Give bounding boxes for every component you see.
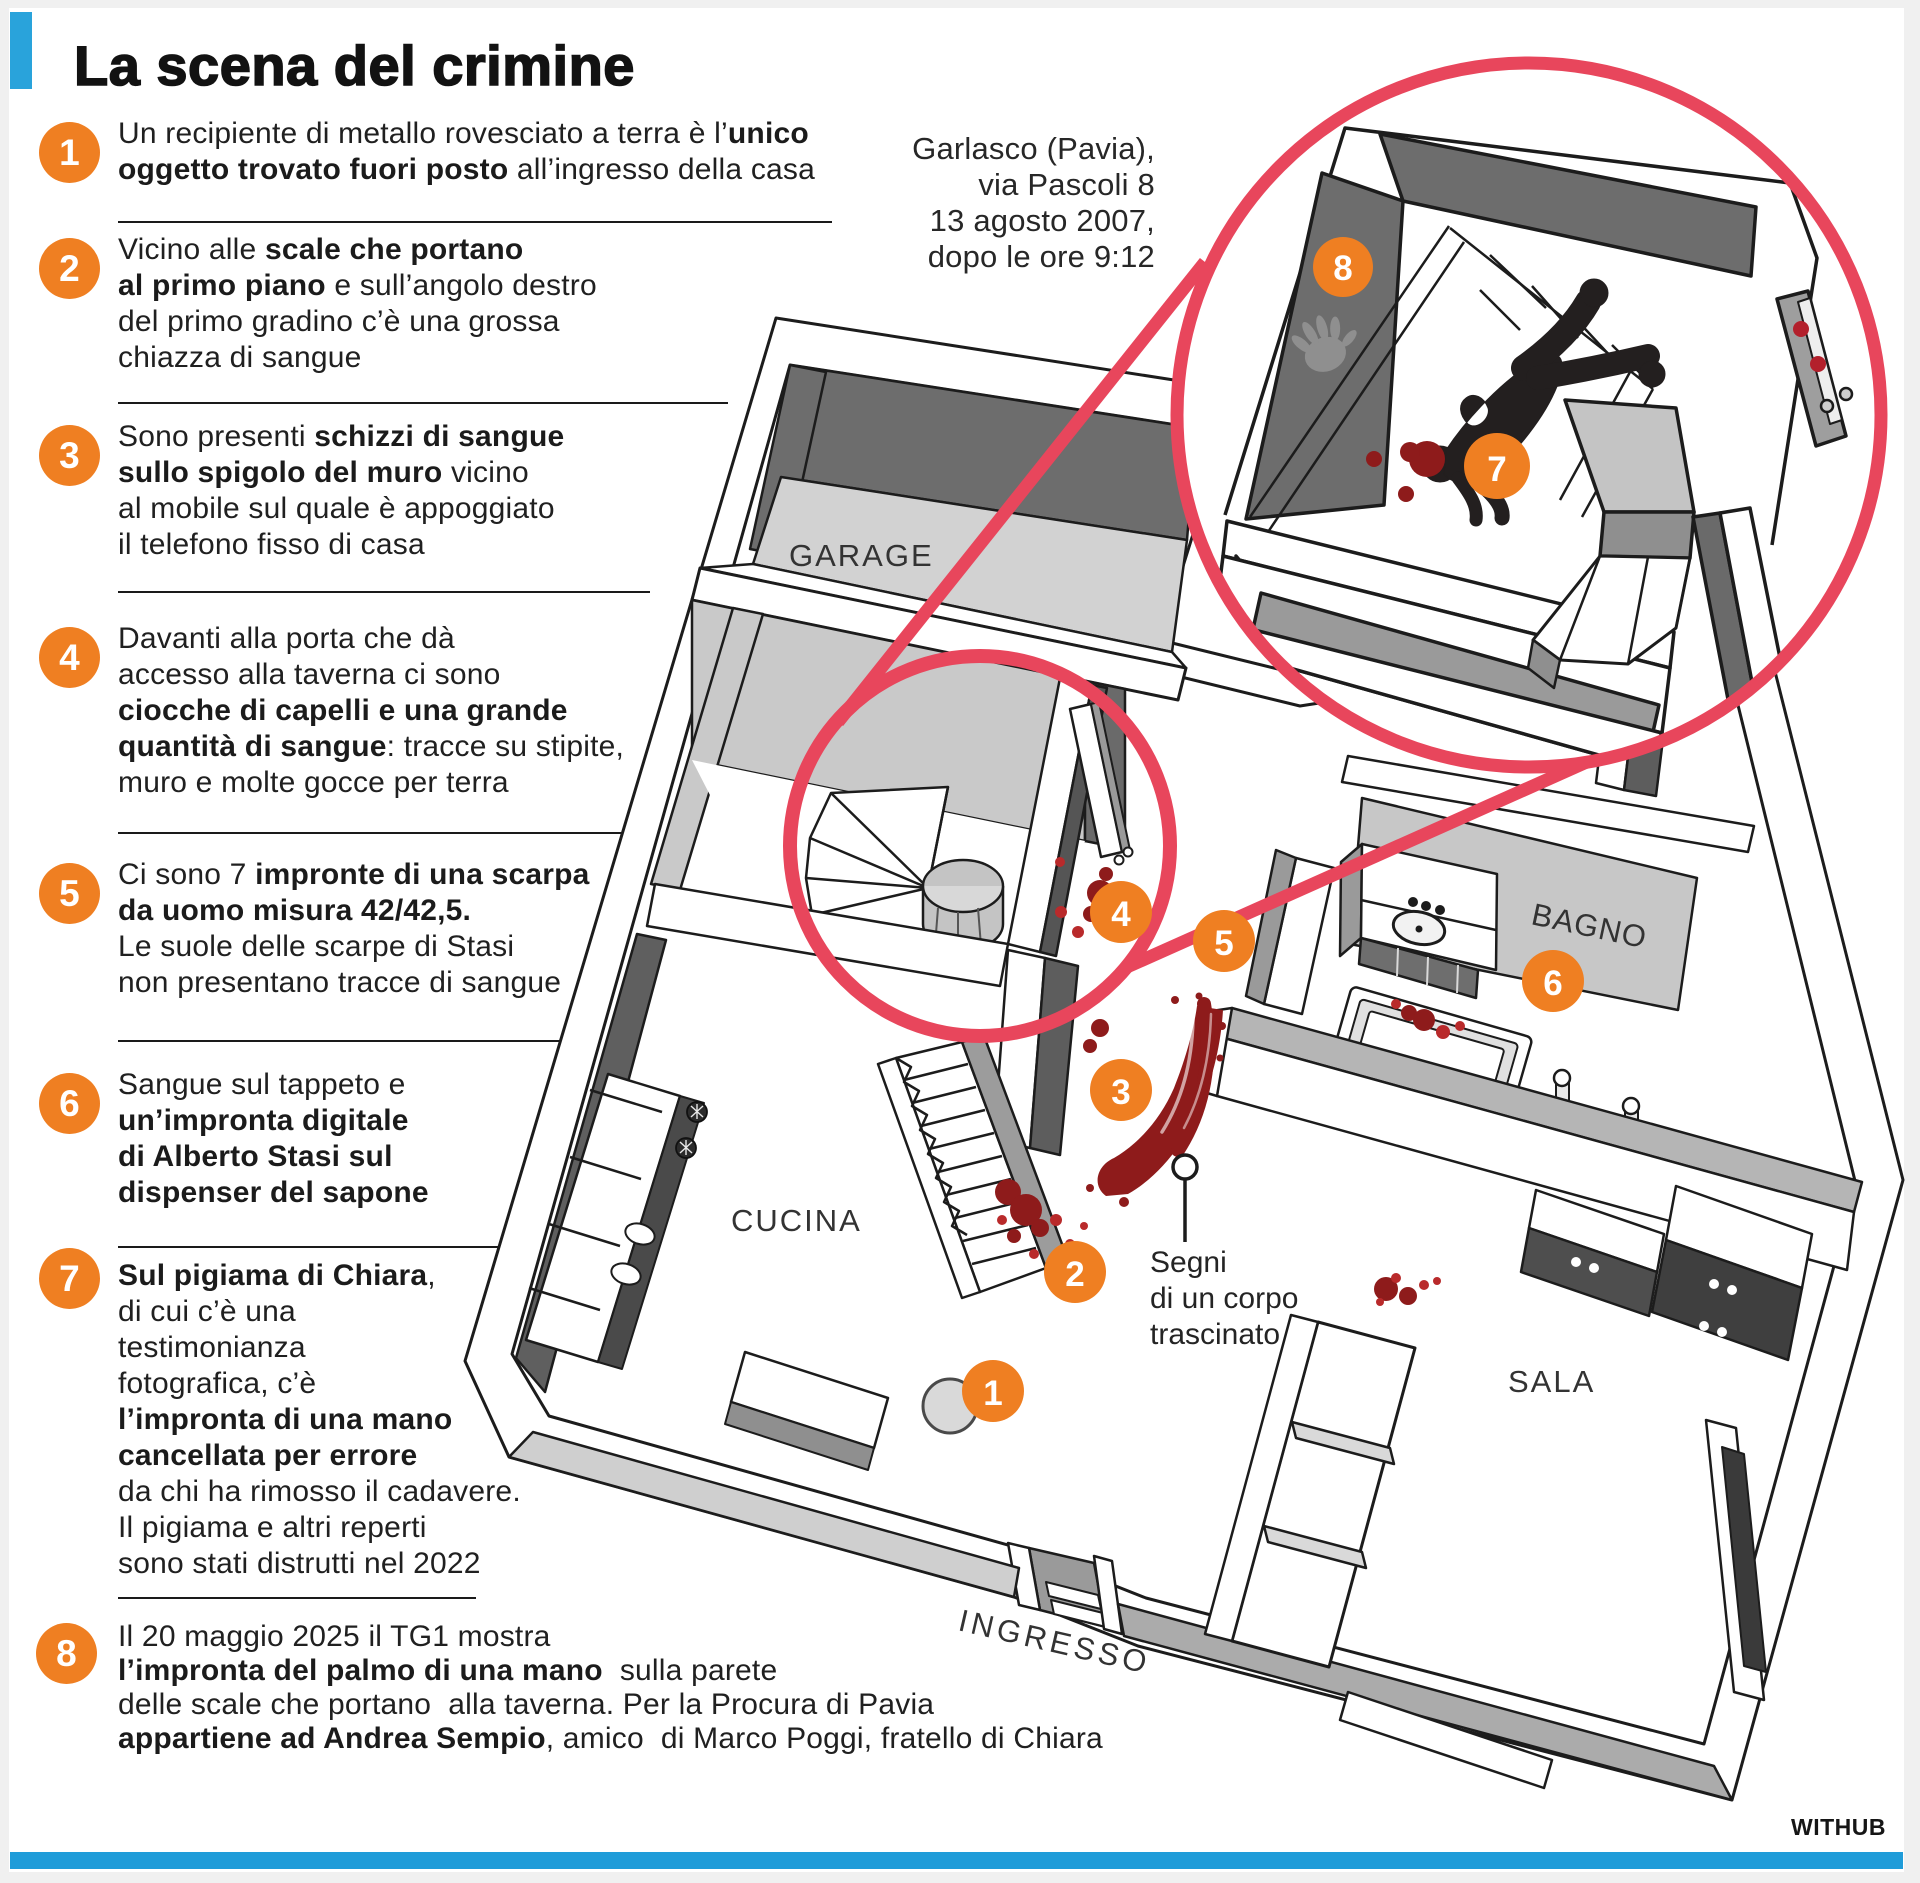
svg-text:GARAGE: GARAGE [789, 538, 934, 573]
svg-text:1: 1 [983, 1374, 1002, 1413]
svg-text:4: 4 [1111, 895, 1131, 934]
svg-text:di un corpo: di un corpo [1150, 1282, 1298, 1315]
svg-text:Segni: Segni [1150, 1246, 1227, 1279]
svg-text:CUCINA: CUCINA [731, 1203, 862, 1238]
svg-text:trascinato: trascinato [1150, 1318, 1280, 1351]
svg-text:2: 2 [1065, 1255, 1084, 1294]
svg-text:3: 3 [1111, 1073, 1130, 1112]
svg-text:SALA: SALA [1508, 1364, 1595, 1399]
svg-text:8: 8 [1333, 249, 1352, 288]
svg-text:7: 7 [1487, 450, 1506, 489]
svg-text:6: 6 [1543, 964, 1562, 1003]
svg-text:5: 5 [1214, 924, 1233, 963]
